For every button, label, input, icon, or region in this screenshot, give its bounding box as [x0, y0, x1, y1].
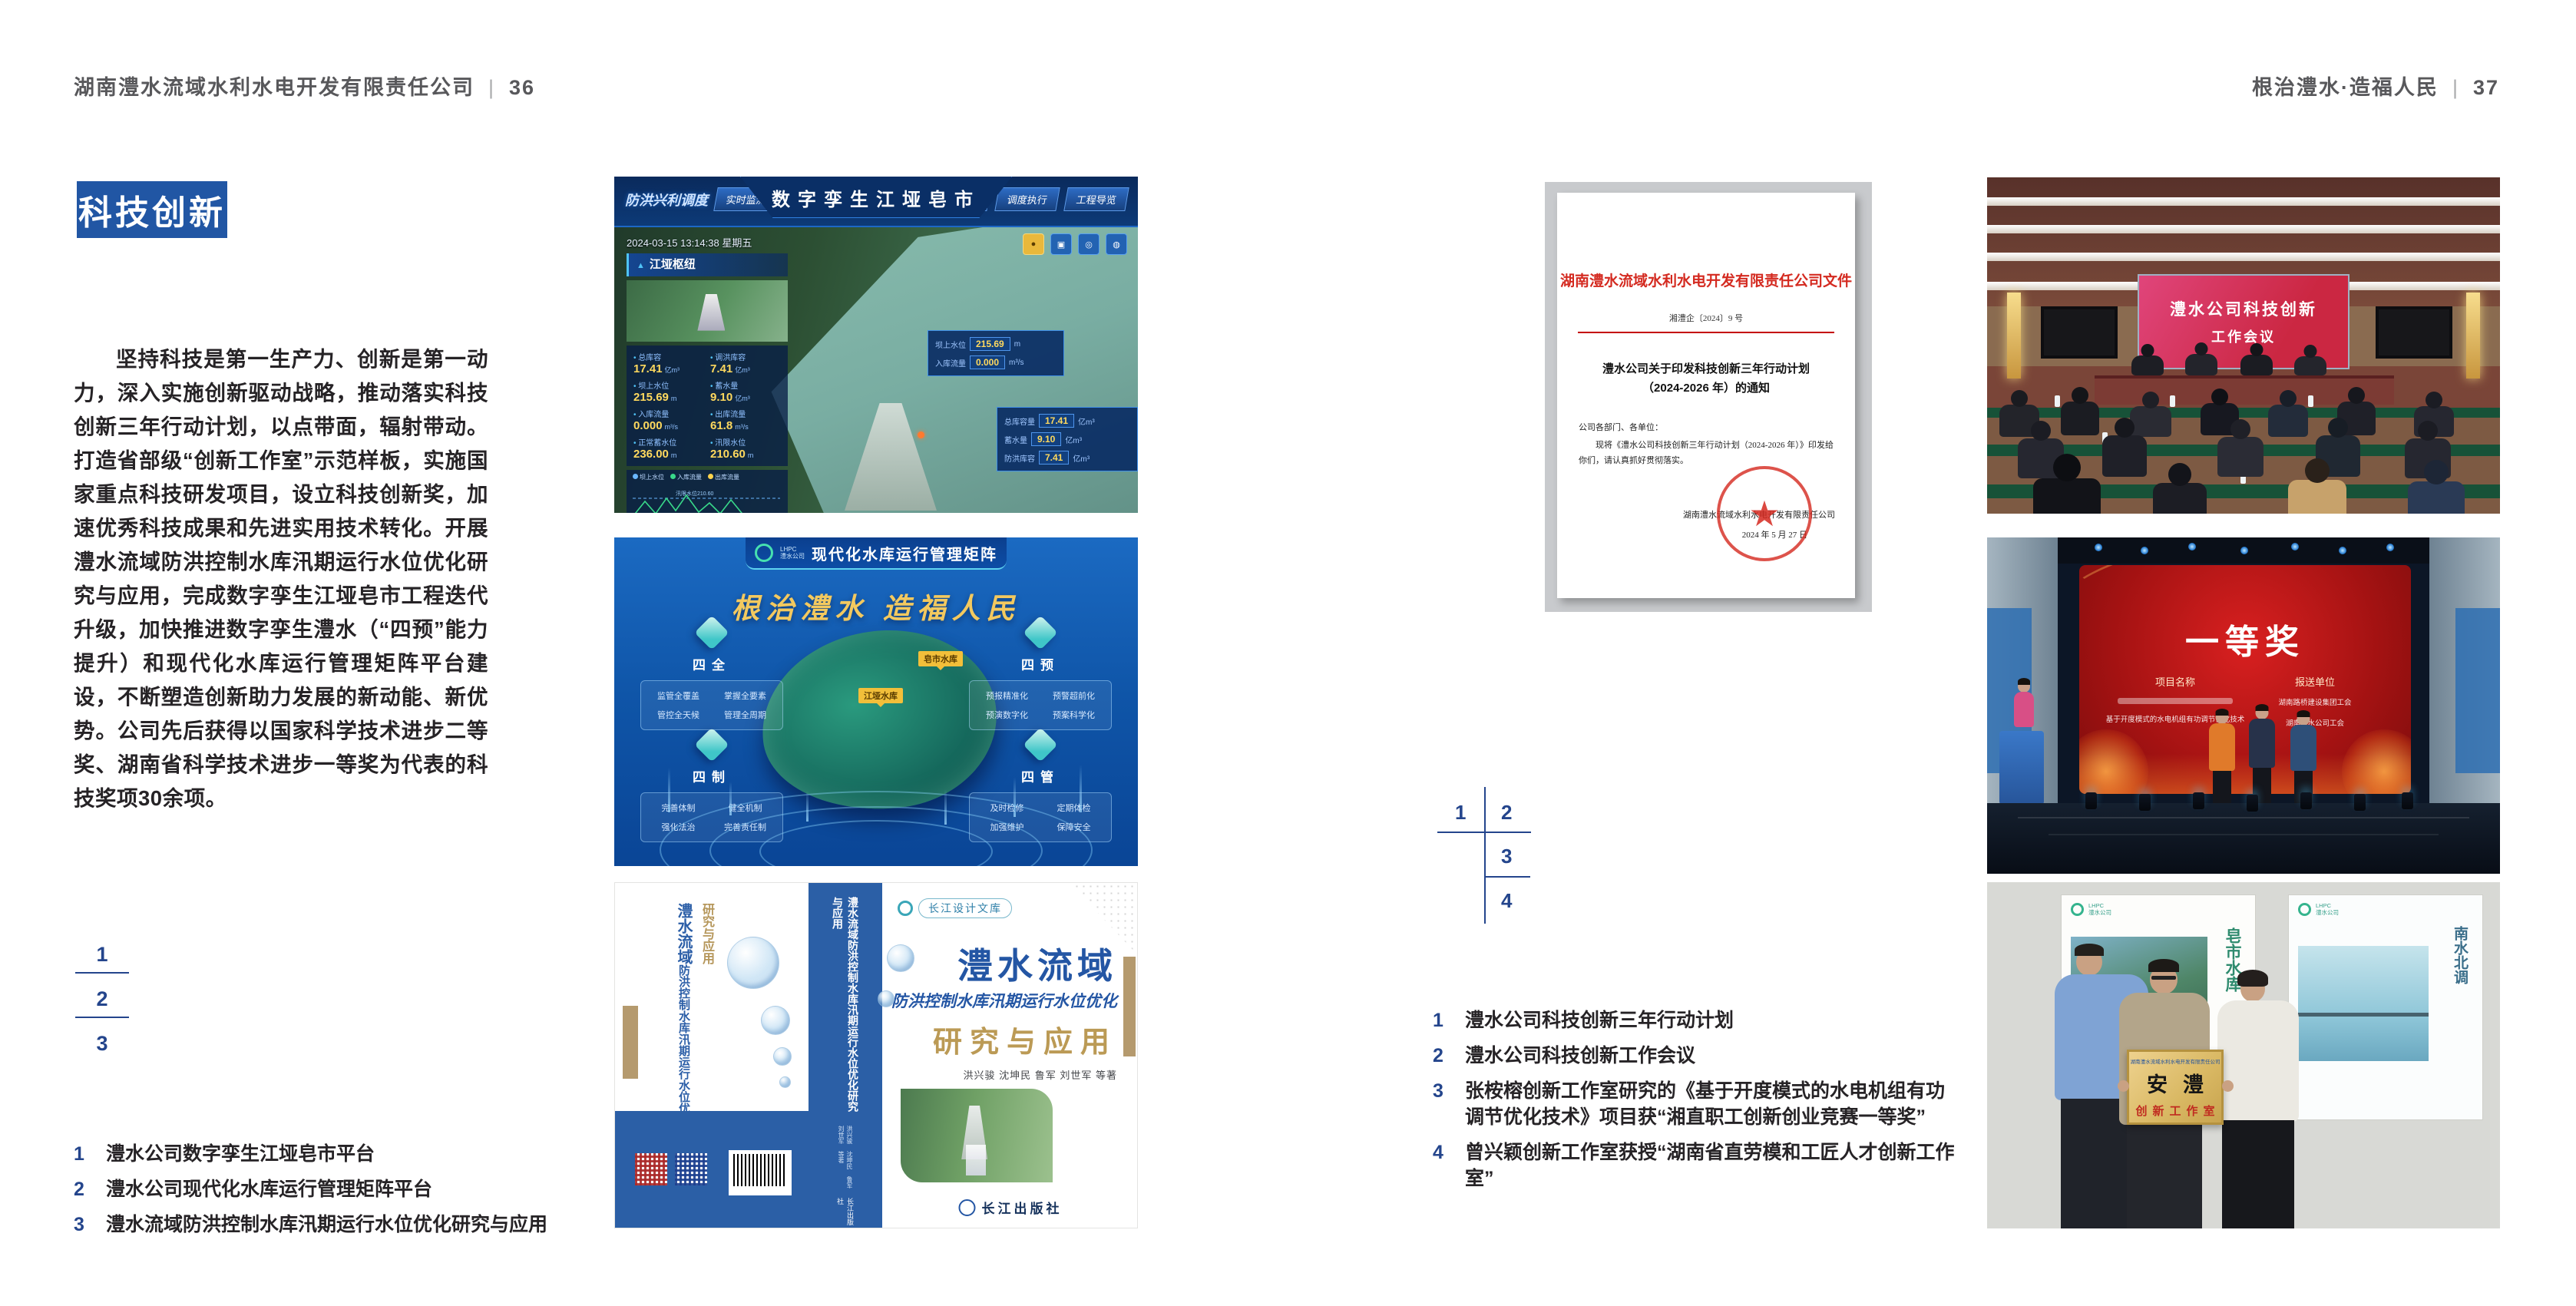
plaque-org-line: 湖南澧水流域水利水电开发有限责任公司: [2129, 1057, 2221, 1065]
stage-spotlight: [2240, 547, 2248, 554]
light-pillar: [668, 768, 670, 812]
plaque-calligraphy: 安澧: [2129, 1068, 2221, 1098]
document-page: 湖南澧水流域水利水电开发有限责任公司文件 湘澧企〔2024〕9 号 澧水公司关于…: [1557, 193, 1855, 598]
hair: [2075, 944, 2104, 956]
brochure-spread: 湖南澧水流域水利水电开发有限责任公司|36 根治澧水·造福人民|37 科技创新 …: [0, 0, 2576, 1306]
matrix-group-siquan: 四全 监管全覆盖掌握全要素 管控全天候管理全周期: [640, 620, 783, 730]
right-captions: 1澧水公司科技创新三年行动计划 2澧水公司科技创新工作会议 3张桉榕创新工作室研…: [1433, 1007, 1970, 1201]
light-pillar: [944, 789, 947, 825]
legend-item: 坝上水位: [633, 473, 664, 481]
legend-item: 入库流量: [670, 473, 702, 481]
person-silhouette: [2131, 355, 2164, 375]
stat-cell: 出库流量61.8m³/s: [710, 408, 781, 432]
stat-cell: 汛限水位210.60m: [710, 436, 781, 461]
caption-number: 4: [1433, 1139, 1451, 1192]
left-data-panel: ▲江垭枢纽 总库容17.41亿m³ 调洪库容7.41亿m³ 坝上水位215.69…: [627, 253, 788, 513]
stage-floor: [1987, 803, 2500, 874]
figure-number: 2: [1501, 801, 1512, 825]
stage-spotlight: [2339, 547, 2346, 554]
floor-reflection: [2049, 834, 2439, 835]
cover-photo: [901, 1089, 1053, 1182]
stats-grid: 总库容17.41亿m³ 调洪库容7.41亿m³ 坝上水位215.69m 蓄水量9…: [627, 346, 788, 466]
marker-label: 皂市水库: [918, 651, 963, 666]
light-strip: [1987, 253, 2500, 261]
cover-authors: 洪兴骏 沈坤民 鲁军 刘世军 等著: [964, 1067, 1117, 1082]
light-pillar: [806, 791, 809, 822]
document-title: 澧水公司关于印发科技创新三年行动计划（2024-2026 年）的通知: [1584, 359, 1828, 398]
group-title: 四管: [969, 766, 1112, 785]
barcode: [729, 1150, 792, 1195]
caption-number: 2: [74, 1176, 92, 1202]
official-red-stamp: ★: [1717, 466, 1812, 561]
legend-item: 出库流量: [708, 473, 739, 481]
photo-innovation-meeting: 澧水公司科技创新 工作会议: [1987, 177, 2500, 514]
left-captions: 1澧水公司数字孪生江垭皂市平台 2澧水公司现代化水库运行管理矩阵平台 3澧水流域…: [74, 1141, 565, 1247]
popup-row: 入库流量0.000m³/s: [935, 355, 1057, 369]
moving-head-light: [2193, 792, 2204, 809]
screen-title-line2: 工作会议: [2211, 326, 2276, 346]
stat-cell: 坝上水位215.69m: [633, 379, 704, 404]
front-cover-tan-bar: [1123, 957, 1136, 1056]
person-silhouette: [2033, 478, 2101, 514]
left-page-header: 湖南澧水流域水利水电开发有限责任公司|36: [74, 71, 535, 101]
document-letterhead: 湖南澧水流域水利水电开发有限责任公司文件: [1557, 269, 1855, 290]
index-line: [1437, 832, 1531, 833]
moving-head-light: [2139, 794, 2151, 811]
lhpc-logo-icon: [755, 544, 773, 562]
person-silhouette: [2061, 402, 2099, 435]
person-silhouette: [2288, 480, 2346, 514]
book-title-part3: 研究与应用: [700, 903, 713, 964]
group-title: 四全: [640, 654, 783, 673]
water-bottle: [2308, 395, 2313, 407]
figure-official-document: 湖南澧水流域水利水电开发有限责任公司文件 湘澧企〔2024〕9 号 澧水公司关于…: [1545, 182, 1872, 612]
hair: [2148, 959, 2179, 972]
left-figure-index: 1 2 3: [75, 941, 129, 1056]
document-salutation: 公司各部门、各单位：: [1579, 421, 1855, 433]
moving-head-light: [2247, 795, 2258, 812]
layers-icon: ▣: [1050, 233, 1072, 255]
caption-row: 1澧水公司科技创新三年行动计划: [1433, 1007, 1970, 1033]
publisher-logo-icon: [959, 1199, 976, 1216]
meeting-screen: 澧水公司科技创新 工作会议: [2138, 274, 2349, 369]
moving-head-light: [2085, 792, 2097, 809]
group-panel: 监管全覆盖掌握全要素 管控全天候管理全周期: [640, 680, 783, 730]
company-name: 湖南澧水流域水利水电开发有限责任公司: [74, 76, 475, 99]
photo-award-ceremony: 一等奖 项目名称 基于开度模式的水电机组有功调节优化技术 报送单位 湖南路桥建设…: [1987, 537, 2500, 874]
person-silhouette: [2130, 406, 2171, 437]
cover-title-tail: 研究与应用: [933, 1018, 1117, 1060]
lhpc-logo-icon: [2298, 903, 2311, 916]
worker-marker: [918, 431, 924, 438]
moving-head-light: [2300, 792, 2312, 809]
column-header: 报送单位: [2242, 674, 2388, 689]
moving-head-light: [2402, 792, 2413, 809]
front-cover: 长江设计文库 澧水流域 防洪控制水库汛期运行水位优化 研究与应用 洪兴骏 沈坤民…: [882, 883, 1138, 1228]
stage-spotlight: [2188, 543, 2196, 551]
water-droplet: [761, 1006, 790, 1035]
person-silhouette: [2240, 355, 2273, 375]
light-pillar: [1080, 765, 1082, 812]
reservoir-marker: 江垭水库: [858, 688, 903, 711]
figure-book-cover: 澧水流域防洪控制水库汛期运行水位优化研究与应用 澧水流域防洪控制水库汛期运行水位…: [614, 882, 1138, 1228]
stage-spotlight: [2095, 544, 2102, 551]
caption-row: 3澧水流域防洪控制水库汛期运行水位优化研究与应用: [74, 1212, 565, 1238]
floor-reflection: [2018, 817, 2469, 818]
book-title-part1: 澧水流域: [675, 903, 692, 964]
water-droplet: [878, 990, 894, 1007]
series-name: 长江设计文库: [918, 898, 1012, 918]
alert-icon: ◍: [1106, 233, 1127, 255]
lhpc-logo-text: LHPC澧水公司: [780, 546, 805, 560]
page-number-left: 36: [509, 76, 535, 99]
marker-pin: [877, 703, 885, 711]
panel-row: 防洪库容7.41亿m³: [1004, 451, 1130, 465]
user-icon: ●: [1023, 233, 1044, 255]
nav-button: 工程导览: [1063, 187, 1129, 211]
qr-code: [635, 1153, 667, 1185]
hair: [2237, 970, 2268, 987]
body-paragraph: 坚持科技是第一生产力、创新是第一动力，深入实施创新驱动战略，推动落实科技创新三年…: [74, 342, 488, 815]
back-cover-title: 澧水流域防洪控制水库汛期运行水位优化研究与应用: [672, 903, 718, 1133]
spine-title: 澧水流域防洪控制水库汛期运行水位优化研究与应用: [830, 897, 861, 1119]
bridge-shape: [2298, 1013, 2429, 1017]
changjiang-design-logo-icon: [898, 901, 913, 916]
nav-section-label: 防洪兴利调度: [625, 190, 708, 210]
locate-icon: ◎: [1078, 233, 1100, 255]
page-slogan: 根治澧水·造福人民: [2252, 76, 2439, 99]
lhpc-logo-row: LHPC澧水公司: [2298, 903, 2339, 916]
dam-shape: [697, 294, 725, 331]
group-title: 四制: [640, 766, 783, 785]
lhpc-logo-text: LHPC澧水公司: [2088, 903, 2111, 916]
timestamp: 2024-03-15 13:14:38 星期五: [627, 235, 752, 250]
chart-canvas: 汛限水位210.60: [630, 483, 783, 513]
nav-button: 调度执行: [994, 187, 1060, 211]
figure-number: 4: [1501, 889, 1512, 913]
matrix-title: 现代化水库运行管理矩阵: [812, 542, 997, 564]
stage-spotlight: [2386, 544, 2394, 551]
toolbar-icons: ● ▣ ◎ ◍: [1023, 233, 1127, 255]
gear-diamond-icon: [1023, 727, 1057, 762]
figure-number: 1: [1455, 801, 1466, 825]
poster-calligraphy: 南水北调: [2449, 926, 2470, 1064]
light-strip: [1987, 197, 2500, 206]
index-line: [1484, 876, 1530, 878]
group-title: 四预: [969, 654, 1112, 673]
map-popup: 坝上水位215.69m 入库流量0.000m³/s: [928, 330, 1064, 376]
platform-title: 数字孪生江垭皂市: [740, 177, 1012, 218]
sail-icon: ▲: [637, 261, 645, 270]
person-silhouette: [2268, 405, 2308, 437]
caption-text: 澧水公司现代化水库运行管理矩阵平台: [106, 1176, 432, 1202]
dam-thumbnail: [627, 280, 788, 342]
document-body: 现将《澧水公司科技创新三年行动计划（2024-2026 年）》印发给你们，请认真…: [1579, 438, 1834, 468]
light-pillar: [1014, 777, 1016, 817]
lhpc-logo-icon: [2071, 903, 2084, 916]
illegible-text-bar: [2118, 698, 2233, 704]
level-flow-chart: 坝上水位 入库流量 出库流量 汛限水位210.60 03-1203-1303-1…: [627, 470, 788, 513]
book-title-part2: 防洪控制水库汛期运行水位优化: [677, 964, 690, 1126]
plaque-subtitle: 创新工作室: [2129, 1103, 2221, 1119]
red-rule: [1578, 332, 1834, 333]
caption-text: 澧水公司科技创新工作会议: [1465, 1043, 1695, 1069]
panel-row: 蓄水量9.10亿m³: [1004, 432, 1130, 446]
glasses: [2151, 976, 2176, 980]
person-silhouette: [2153, 483, 2207, 514]
cover-title-main: 澧水流域: [957, 938, 1117, 989]
right-page-header: 根治澧水·造福人民|37: [2252, 71, 2499, 101]
light-strip: [1987, 225, 2500, 233]
stat-cell: 蓄水量9.10亿m³: [710, 379, 781, 404]
side-data-panel: 总库容量17.41亿m³ 蓄水量9.10亿m³ 防洪库容7.41亿m³: [997, 407, 1138, 471]
caption-text: 张桉榕创新工作室研究的《基于开度模式的水电机组有功调节优化技术》项目获“湘直职工…: [1465, 1078, 1963, 1130]
poster-right: LHPC澧水公司 南水北调: [2288, 894, 2483, 1120]
stage-spotlight: [2141, 547, 2148, 554]
figure-number: 2: [75, 986, 129, 1012]
panel-row: 总库容量17.41亿m³: [1004, 414, 1130, 428]
person-silhouette: [2217, 437, 2264, 477]
hand: [2222, 1080, 2234, 1092]
figure-number: 1: [75, 941, 129, 967]
light-pillar: [729, 782, 732, 815]
section-title-badge: 科技创新: [77, 181, 227, 238]
screen-title-line1: 澧水公司科技创新: [2170, 297, 2317, 320]
caption-row: 1澧水公司数字孪生江垭皂市平台: [74, 1141, 565, 1167]
caption-text: 澧水公司数字孪生江垭皂市平台: [106, 1141, 375, 1167]
chart-legend: 坝上水位 入库流量 出库流量: [633, 473, 785, 481]
legs: [2127, 1123, 2202, 1228]
caption-number: 3: [74, 1212, 92, 1238]
winner-silhouette-orange: [2207, 711, 2237, 815]
hand: [2118, 1080, 2129, 1092]
award-title: 一等奖: [2079, 614, 2411, 663]
water-droplet: [779, 1076, 791, 1088]
spine-publisher: 长江出版社: [835, 1198, 855, 1228]
stamp-star: ★: [1748, 493, 1780, 534]
matrix-group-siyu: 四预 预报精准化预警超前化 预演数字化预案科学化: [969, 620, 1112, 730]
marker-pin: [937, 666, 944, 674]
water-droplet: [887, 944, 914, 972]
column-header: 项目名称: [2102, 674, 2248, 689]
legs: [2222, 1120, 2294, 1228]
wall-tv: [2376, 306, 2452, 359]
panel-title: 江垭枢纽: [650, 258, 696, 271]
water-bottle: [2055, 395, 2060, 407]
header-divider: |: [2452, 76, 2459, 99]
spine-authors: 洪兴骏 沈坤民 鲁军 刘世军 等著: [837, 1126, 854, 1195]
document-date: 2024 年 5 月 27 日: [1557, 528, 1855, 541]
reservoir-marker: 皂市水库: [918, 651, 963, 674]
moving-head-light: [2354, 794, 2366, 811]
caption-text: 曾兴颖创新工作室获授“湖南省直劳模和工匠人才创新工作室”: [1465, 1139, 1970, 1192]
caption-text: 澧水流域防洪控制水库汛期运行水位优化研究与应用: [106, 1212, 547, 1238]
series-logo-row: 长江设计文库: [898, 898, 1012, 918]
person-silhouette: [2408, 481, 2465, 514]
person-silhouette: [2294, 356, 2326, 375]
caption-row: 4曾兴颖创新工作室获授“湖南省直劳模和工匠人才创新工作室”: [1433, 1139, 1970, 1192]
index-line: [1484, 787, 1486, 924]
figure-number: 3: [75, 1030, 129, 1056]
podium: [1999, 731, 2044, 805]
cover-title-sub: 防洪控制水库汛期运行水位优化: [891, 989, 1117, 1012]
blue-side-screen: [2455, 608, 2500, 773]
index-divider: [75, 1017, 129, 1018]
photo-workshop-plaque: LHPC澧水公司 皂市水库 LHPC澧水公司 南水北调: [1987, 882, 2500, 1228]
publisher-row: 长江出版社: [959, 1198, 1063, 1217]
book-spine: 澧水流域防洪控制水库汛期运行水位优化研究与应用 洪兴骏 沈坤民 鲁军 刘世军 等…: [809, 883, 882, 1228]
figure-matrix-platform: LHPC澧水公司 现代化水库运行管理矩阵 根治澧水 造福人民 皂市水库 江垭水库…: [614, 537, 1138, 866]
person-silhouette: [2102, 435, 2147, 477]
innovation-workshop-plaque: 湖南澧水流域水利水电开发有限责任公司 安澧 创新工作室: [2127, 1050, 2224, 1125]
caption-number: 1: [74, 1141, 92, 1167]
limit-level-note: 汛限水位210.60: [676, 490, 714, 497]
lhpc-logo-text: LHPC澧水公司: [2316, 903, 2339, 916]
group-panel: 预报精准化预警超前化 预演数字化预案科学化: [969, 680, 1112, 730]
person-silhouette: [2185, 354, 2217, 375]
page-number-right: 37: [2473, 76, 2499, 99]
lhpc-logo-row: LHPC澧水公司: [2071, 903, 2111, 916]
water-droplet: [727, 937, 779, 989]
water-droplet: [773, 1047, 792, 1066]
wall-lamp: [2007, 293, 2021, 379]
skyline-glow: [2079, 754, 2411, 794]
wall-tv: [2041, 306, 2118, 359]
stat-cell: 正常蓄水位236.00m: [633, 436, 704, 461]
wall-lamp: [2466, 293, 2480, 379]
matrix-header: LHPC澧水公司 现代化水库运行管理矩阵: [746, 537, 1007, 570]
document-number: 湘澧企〔2024〕9 号: [1557, 312, 1855, 324]
drop-diamond-icon: [694, 615, 729, 650]
spillway-shape: [966, 1145, 986, 1175]
marker-label: 江垭水库: [858, 688, 903, 703]
torso-white-shirt: [2217, 1000, 2299, 1122]
poster-bridge-photo: [2298, 946, 2429, 1061]
caption-row: 2澧水公司科技创新工作会议: [1433, 1043, 1970, 1069]
caption-text: 澧水公司科技创新三年行动计划: [1465, 1007, 1734, 1033]
publisher-name: 长江出版社: [982, 1198, 1063, 1217]
caption-row: 2澧水公司现代化水库运行管理矩阵平台: [74, 1176, 565, 1202]
stage-spotlight: [2291, 543, 2299, 551]
caption-row: 3张桉榕创新工作室研究的《基于开度模式的水电机组有功调节优化技术》项目获“湘直职…: [1433, 1078, 1970, 1130]
caption-number: 3: [1433, 1078, 1451, 1130]
stat-cell: 入库流量0.000m³/s: [633, 408, 704, 432]
caption-number: 2: [1433, 1043, 1451, 1069]
flag-diamond-icon: [1023, 615, 1057, 650]
led-screen: 一等奖 项目名称 基于开度模式的水电机组有功调节优化技术 报送单位 湖南路桥建设…: [2079, 565, 2411, 794]
index-divider: [75, 972, 129, 974]
stat-cell: 调洪库容7.41亿m³: [710, 351, 781, 375]
popup-row: 坝上水位215.69m: [935, 337, 1057, 351]
building-diamond-icon: [694, 727, 729, 762]
figure-digital-twin-platform: 防洪兴利调度 实时监测 洪水预报 防汛预警 风险预演 预案生成 调度执行 工程导…: [614, 177, 1138, 513]
water-bottle: [2170, 395, 2175, 407]
back-cover-tan-bar: [623, 1006, 638, 1079]
stat-cell: 总库容17.41亿m³: [633, 351, 704, 375]
figure-number: 3: [1501, 845, 1512, 868]
panel-header: ▲江垭枢纽: [627, 253, 788, 276]
qr-code: [675, 1153, 707, 1185]
header-divider: |: [488, 76, 495, 99]
caption-number: 1: [1433, 1007, 1451, 1033]
